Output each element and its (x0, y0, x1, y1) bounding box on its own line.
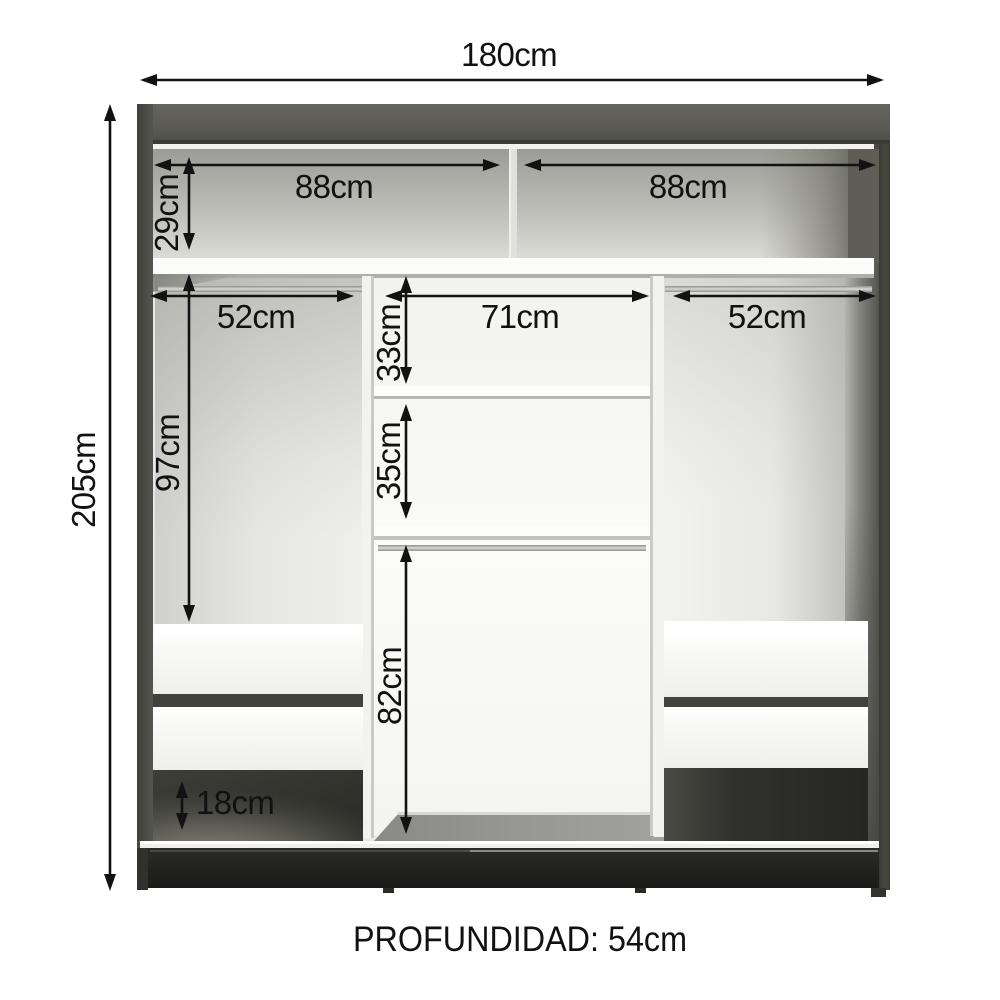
svg-text:205cm: 205cm (65, 432, 102, 528)
svg-text:29cm: 29cm (148, 174, 185, 252)
svg-text:35cm: 35cm (370, 422, 407, 500)
svg-text:82cm: 82cm (371, 647, 408, 725)
svg-text:88cm: 88cm (295, 168, 373, 205)
svg-text:88cm: 88cm (649, 168, 727, 205)
svg-text:PROFUNDIDAD: 54cm: PROFUNDIDAD: 54cm (353, 920, 687, 959)
svg-text:97cm: 97cm (149, 414, 186, 492)
svg-text:52cm: 52cm (728, 298, 806, 335)
svg-text:180cm: 180cm (461, 36, 557, 73)
svg-text:33cm: 33cm (370, 304, 407, 382)
svg-text:52cm: 52cm (217, 298, 295, 335)
svg-text:18cm: 18cm (196, 784, 274, 821)
svg-text:71cm: 71cm (481, 298, 559, 335)
